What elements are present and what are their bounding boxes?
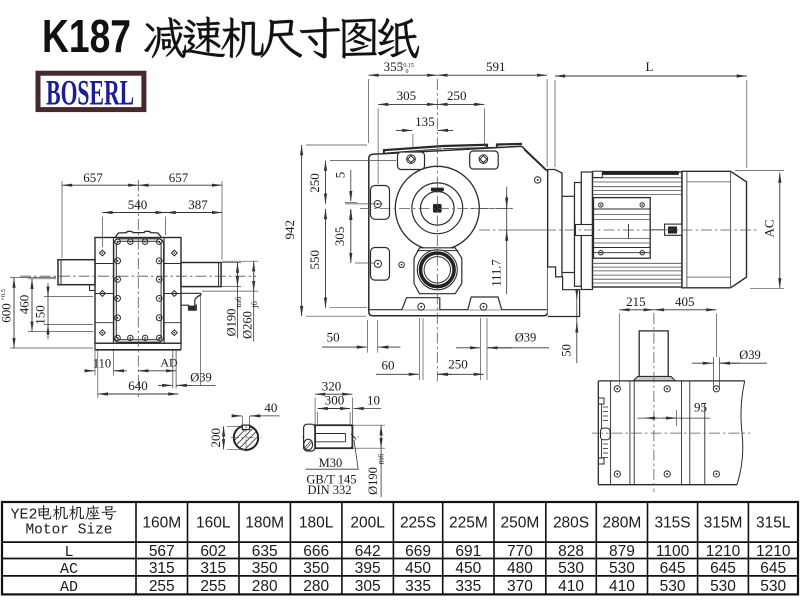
svg-text:450: 450: [455, 560, 481, 577]
svg-text:335: 335: [455, 578, 481, 595]
svg-text:657: 657: [169, 170, 189, 185]
svg-text:AD: AD: [160, 356, 178, 370]
svg-text:+0.5: +0.5: [0, 289, 7, 301]
svg-text:Ø39: Ø39: [190, 370, 212, 384]
svg-text:AC: AC: [60, 561, 78, 578]
svg-text:600: 600: [0, 303, 14, 323]
svg-text:405: 405: [675, 294, 695, 309]
svg-text:250M: 250M: [501, 515, 540, 532]
svg-text:m6: m6: [375, 454, 385, 465]
svg-text:828: 828: [558, 543, 584, 560]
svg-text:135: 135: [415, 114, 435, 129]
svg-text:320: 320: [322, 378, 342, 393]
svg-text:L: L: [646, 59, 654, 74]
svg-text:AD: AD: [60, 579, 78, 596]
svg-text:YE2: YE2: [10, 507, 37, 524]
svg-text:0: 0: [406, 69, 409, 75]
svg-text:280M: 280M: [603, 515, 642, 532]
svg-text:602: 602: [200, 543, 226, 560]
svg-text:1100: 1100: [656, 543, 690, 560]
svg-text:40: 40: [264, 400, 277, 415]
svg-text:350: 350: [252, 560, 278, 577]
svg-text:160L: 160L: [196, 515, 231, 532]
svg-text:942: 942: [282, 220, 297, 240]
svg-text:642: 642: [355, 543, 381, 560]
svg-text:530: 530: [558, 560, 584, 577]
svg-text:305: 305: [355, 578, 381, 595]
svg-text:215: 215: [626, 294, 646, 309]
svg-text:Ø39: Ø39: [739, 348, 761, 362]
svg-text:180L: 180L: [299, 515, 334, 532]
svg-text:10: 10: [367, 393, 380, 408]
svg-text:280: 280: [252, 578, 278, 595]
svg-text:280S: 280S: [553, 515, 589, 532]
svg-text:225M: 225M: [449, 515, 488, 532]
svg-text:225S: 225S: [400, 515, 436, 532]
svg-text:315L: 315L: [756, 515, 791, 532]
svg-text:Motor Size: Motor Size: [25, 523, 112, 539]
svg-text:Ø260: Ø260: [241, 311, 255, 339]
svg-text:645: 645: [710, 560, 736, 577]
svg-text:770: 770: [507, 543, 533, 560]
svg-text:669: 669: [405, 543, 431, 560]
svg-text:315: 315: [149, 560, 175, 577]
svg-text:305: 305: [397, 88, 417, 103]
svg-text:250: 250: [447, 88, 467, 103]
svg-text:305: 305: [332, 227, 347, 247]
svg-text:1210: 1210: [706, 543, 741, 560]
svg-text:280: 280: [303, 578, 329, 595]
svg-text:395: 395: [355, 560, 381, 577]
svg-text:645: 645: [660, 560, 686, 577]
svg-text:640: 640: [128, 378, 148, 393]
svg-text:255: 255: [200, 578, 226, 595]
svg-text:111.7: 111.7: [489, 259, 503, 286]
svg-text:M30: M30: [319, 456, 343, 470]
svg-text:250: 250: [307, 173, 322, 193]
svg-text:410: 410: [558, 578, 584, 595]
svg-text:j6: j6: [249, 301, 259, 309]
svg-text:180M: 180M: [245, 515, 284, 532]
svg-text:50: 50: [559, 344, 573, 357]
svg-text:5: 5: [332, 172, 347, 179]
svg-text:530: 530: [660, 578, 686, 595]
svg-text:1210: 1210: [756, 543, 791, 560]
svg-text:567: 567: [149, 543, 175, 560]
svg-text:480: 480: [507, 560, 533, 577]
svg-text:315M: 315M: [704, 515, 743, 532]
svg-text:450: 450: [405, 560, 431, 577]
svg-text:Ø190: Ø190: [225, 309, 239, 337]
svg-text:50: 50: [327, 330, 340, 345]
svg-text:Ø190: Ø190: [366, 467, 380, 495]
svg-text:L: L: [64, 544, 73, 561]
svg-text:160M: 160M: [142, 515, 181, 532]
svg-text:879: 879: [609, 543, 635, 560]
svg-text:691: 691: [455, 543, 481, 560]
svg-text:60: 60: [382, 357, 395, 372]
svg-text:370: 370: [507, 578, 533, 595]
svg-text:645: 645: [760, 560, 786, 577]
svg-text:350: 350: [303, 560, 329, 577]
svg-text:AC: AC: [762, 219, 777, 237]
svg-text:250: 250: [448, 356, 468, 371]
svg-text:666: 666: [303, 543, 329, 560]
svg-text:460: 460: [17, 295, 32, 315]
svg-text:530: 530: [710, 578, 736, 595]
svg-text:95: 95: [694, 400, 707, 415]
svg-text:m6: m6: [233, 297, 243, 308]
svg-text:DIN 332: DIN 332: [307, 483, 351, 497]
svg-text:635: 635: [252, 543, 278, 560]
svg-text:200L: 200L: [350, 515, 385, 532]
svg-text:300: 300: [325, 393, 345, 408]
svg-text:200: 200: [208, 428, 223, 448]
svg-text:387: 387: [188, 197, 208, 212]
svg-text:335: 335: [405, 578, 431, 595]
svg-text:K187: K187: [42, 10, 131, 62]
svg-text:657: 657: [83, 170, 103, 185]
svg-text:Ø39: Ø39: [515, 331, 537, 345]
svg-text:591: 591: [486, 59, 506, 74]
svg-text:255: 255: [149, 578, 175, 595]
svg-text:530: 530: [609, 560, 635, 577]
svg-text:315S: 315S: [654, 515, 690, 532]
svg-text:BOSERL: BOSERL: [46, 72, 134, 112]
svg-text:150: 150: [33, 305, 48, 325]
svg-text:530: 530: [760, 578, 786, 595]
svg-text:315: 315: [200, 560, 226, 577]
svg-text:550: 550: [307, 250, 322, 270]
svg-text:110: 110: [93, 356, 111, 370]
svg-text:410: 410: [609, 578, 635, 595]
svg-text:540: 540: [128, 197, 148, 212]
